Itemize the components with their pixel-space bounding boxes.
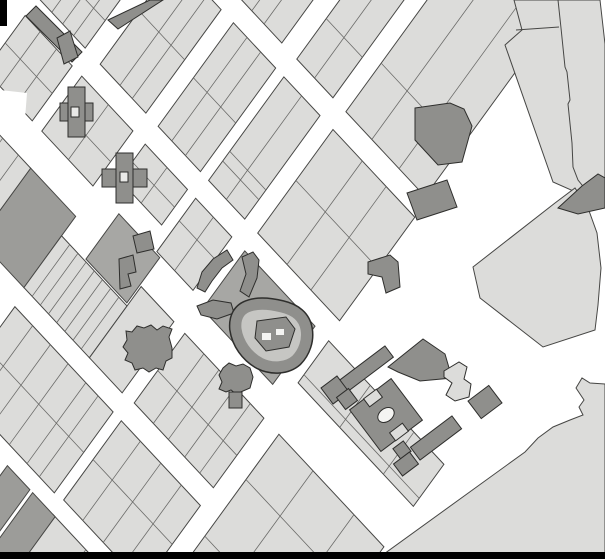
ring-inner-court <box>276 329 284 335</box>
frame-topleft-tick <box>0 0 7 26</box>
map-canvas[interactable] <box>0 0 605 559</box>
small-blob-building <box>219 363 253 394</box>
street-notch <box>0 90 27 121</box>
ring-inner-court <box>262 333 271 340</box>
cross-building-1-court <box>71 107 79 117</box>
small-blob-tail <box>229 392 242 408</box>
cross-building-2-court <box>120 172 128 182</box>
frame-bottom-bar <box>0 552 605 559</box>
map-viewport[interactable] <box>0 0 605 559</box>
ring-landmark <box>236 304 307 367</box>
